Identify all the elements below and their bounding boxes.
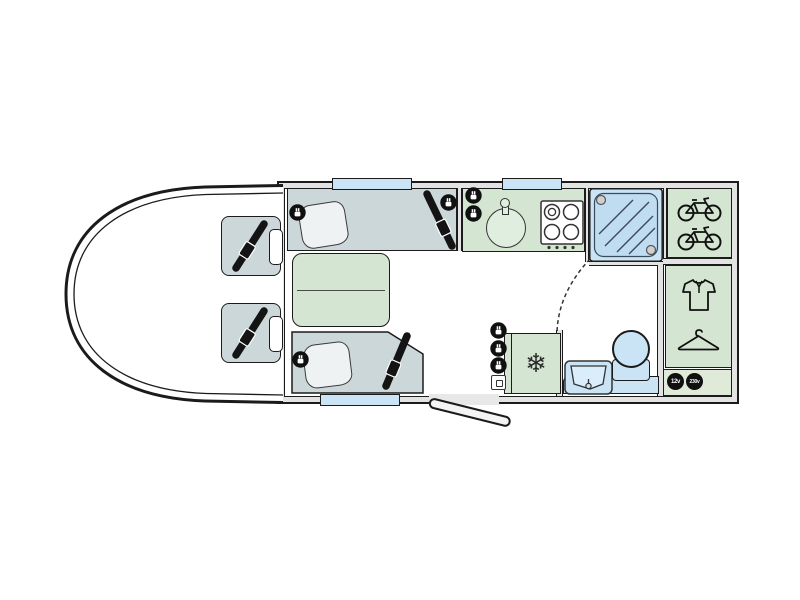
motorhome-floorplan: 12v 230v ❄ [0,0,800,600]
seatbelt-layer [0,0,800,600]
usb-socket-icon [440,194,457,211]
power-socket-icon [465,187,482,204]
usb-socket-icon [289,204,306,221]
seatbelt-icon [236,224,264,268]
seatbelt-icon [236,311,264,355]
seatbelt-icon [385,336,407,386]
power-socket-icon [465,205,482,222]
usb-socket-icon [292,351,309,368]
